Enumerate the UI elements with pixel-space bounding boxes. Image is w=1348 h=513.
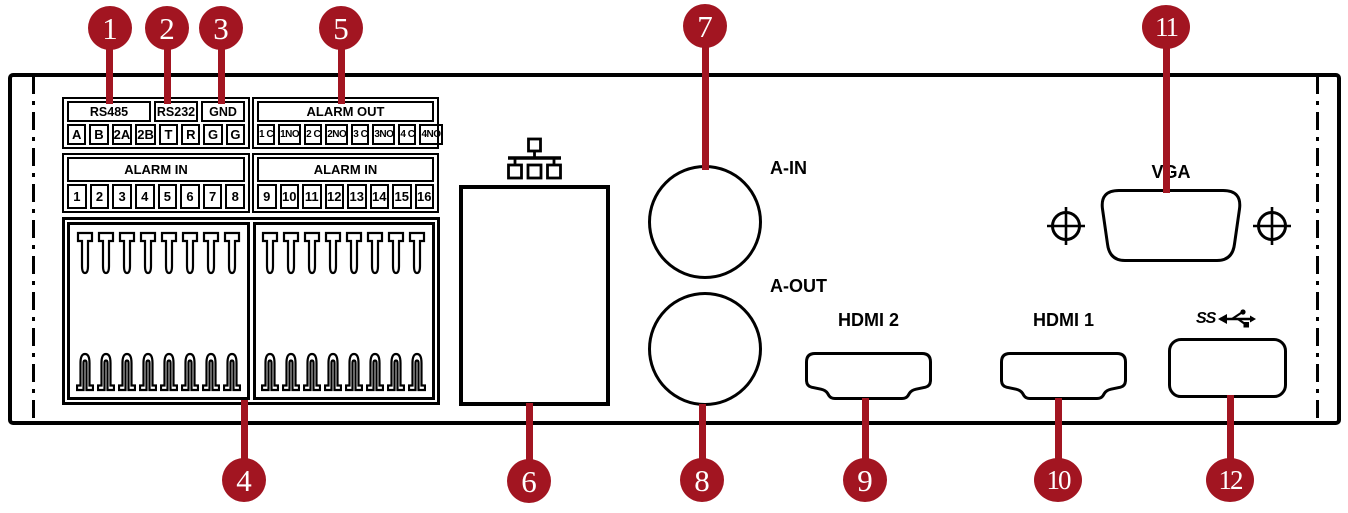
terminal-header-rs232: RS232 [154,101,198,122]
terminal-header-rs485: RS485 [67,101,151,122]
callout-2: 2 [145,6,189,50]
rs485-rs232-gnd-terminal-strip: RS485RS232GNDAB2A2BTRGG [62,97,250,149]
rear-panel-diagram: RS485RS232GNDAB2A2BTRGG ALARM OUT1 C1NO2… [0,0,1348,513]
terminal-cell-1no: 1NO [278,124,301,145]
terminal-cell-3: 3 [112,184,132,209]
callout-9-stem [862,398,869,462]
terminal-cell-6: 6 [180,184,200,209]
screw-terminal-pin-bottom [324,350,342,392]
screw-terminal-pin-bottom [366,350,384,392]
terminal-cell-2b: 2B [135,124,156,145]
terminal-header-alarm-in: ALARM IN [67,157,245,182]
screw-terminal-pin-top [366,231,384,275]
network-icon [506,137,563,181]
callout-1: 1 [88,6,132,50]
hdmi1-label: HDMI 1 [1000,310,1127,331]
vga-port [1097,188,1245,264]
callout-6: 6 [507,459,551,503]
callout-12-stem [1227,395,1234,462]
audio-in-connector [648,165,762,279]
screw-terminal-pin-bottom [118,350,136,392]
terminal-cell-12: 12 [325,184,345,209]
screw-terminal-pin-top [303,231,321,275]
audio-out-label: A-OUT [770,276,827,297]
screw-terminal-pin-top [261,231,279,275]
usb-trident-icon [1216,308,1256,330]
screw-terminal-pin-top [282,231,300,275]
alarm-out-terminal-strip: ALARM OUT1 C1NO2 C2NO3 C3NO4 C4NO [252,97,439,149]
terminal-cell-13: 13 [347,184,367,209]
screw-terminal-pin-bottom [387,350,405,392]
terminal-cell-r: R [181,124,200,145]
usb-ss-text: SS [1196,310,1215,328]
callout-9: 9 [843,458,887,502]
callout-8: 8 [680,458,724,502]
screw-terminal-pin-top [118,231,136,275]
callout-7: 7 [683,4,727,48]
terminal-cell-g: G [226,124,245,145]
terminal-cell-2no: 2NO [325,124,348,145]
screw-terminal-pin-top [160,231,178,275]
callout-7-stem [702,44,709,170]
screw-terminal-pin-bottom [139,350,157,392]
audio-in-label: A-IN [770,158,807,179]
screw-terminal-pin-top [202,231,220,275]
alarm-in-terminal-strip-1-8: ALARM IN12345678 [62,153,250,213]
callout-11: 11 [1142,5,1190,49]
terminal-header-alarm-in: ALARM IN [257,157,434,182]
callout-3: 3 [199,6,243,50]
callout-8-stem [699,404,706,462]
terminal-connector-left-half [67,222,250,400]
terminal-header-gnd: GND [201,101,245,122]
terminal-cell-15: 15 [392,184,412,209]
terminal-cell-4no: 4NO [419,124,442,145]
screw-terminal-pin-top [345,231,363,275]
terminal-connector-right-half [253,222,436,400]
screw-terminal-pin-bottom [345,350,363,392]
terminal-cell-10: 10 [280,184,300,209]
screw-terminal-pin-top [223,231,241,275]
terminal-cell-a: A [67,124,86,145]
screw-terminal-pin-bottom [202,350,220,392]
terminal-cell-g: G [203,124,222,145]
screw-terminal-pin-top [139,231,157,275]
terminal-cell-3c: 3 C [351,124,369,145]
terminal-cell-16: 16 [415,184,435,209]
screw-terminal-pin-bottom [76,350,94,392]
screw-terminal-pin-top [97,231,115,275]
terminal-cell-14: 14 [370,184,390,209]
callout-3-stem [218,46,225,104]
hdmi2-port [805,352,932,400]
terminal-cell-7: 7 [203,184,223,209]
callout-5: 5 [319,6,363,50]
audio-out-connector [648,292,762,406]
usb-port [1168,338,1287,398]
terminal-cell-4: 4 [135,184,155,209]
terminal-cell-2a: 2A [112,124,133,145]
callout-4-stem [241,400,248,462]
terminal-cell-8: 8 [225,184,245,209]
callout-5-stem [338,46,345,104]
usb-ss-icon: SS [1196,308,1256,330]
ethernet-port [459,185,610,406]
screw-terminal-pin-bottom [181,350,199,392]
screw-terminal-pin-bottom [282,350,300,392]
terminal-cell-11: 11 [302,184,322,209]
alarm-in-terminal-strip-9-16: ALARM IN910111213141516 [252,153,439,213]
screw-terminal-pin-top [408,231,426,275]
terminal-cell-2: 2 [90,184,110,209]
callout-11-stem [1163,45,1170,193]
terminal-connector-block [62,217,440,405]
terminal-cell-5: 5 [158,184,178,209]
callout-12: 12 [1206,458,1254,502]
callout-10: 10 [1034,458,1082,502]
screw-terminal-pin-bottom [261,350,279,392]
callout-1-stem [106,46,113,104]
hdmi2-label: HDMI 2 [805,310,932,331]
callout-6-stem [526,403,533,463]
screw-terminal-pin-top [181,231,199,275]
screw-terminal-pin-top [324,231,342,275]
terminal-cell-2c: 2 C [304,124,322,145]
callout-4: 4 [222,458,266,502]
terminal-cell-9: 9 [257,184,277,209]
screw-terminal-pin-top [76,231,94,275]
screw-terminal-pin-bottom [303,350,321,392]
hdmi1-port [1000,352,1127,400]
callout-2-stem [164,46,171,104]
terminal-cell-1c: 1 C [257,124,275,145]
terminal-cell-t: T [159,124,178,145]
callout-10-stem [1055,398,1062,462]
terminal-cell-3no: 3NO [372,124,395,145]
screw-terminal-pin-bottom [97,350,115,392]
vga-screw-right-icon [1251,205,1293,247]
terminal-cell-b: B [89,124,108,145]
vga-label: VGA [1097,162,1245,183]
terminal-cell-4c: 4 C [398,124,416,145]
screw-terminal-pin-bottom [160,350,178,392]
terminal-header-alarm-out: ALARM OUT [257,101,434,122]
terminal-cell-1: 1 [67,184,87,209]
vga-screw-left-icon [1045,205,1087,247]
screw-terminal-pin-bottom [223,350,241,392]
screw-terminal-pin-top [387,231,405,275]
screw-terminal-pin-bottom [408,350,426,392]
